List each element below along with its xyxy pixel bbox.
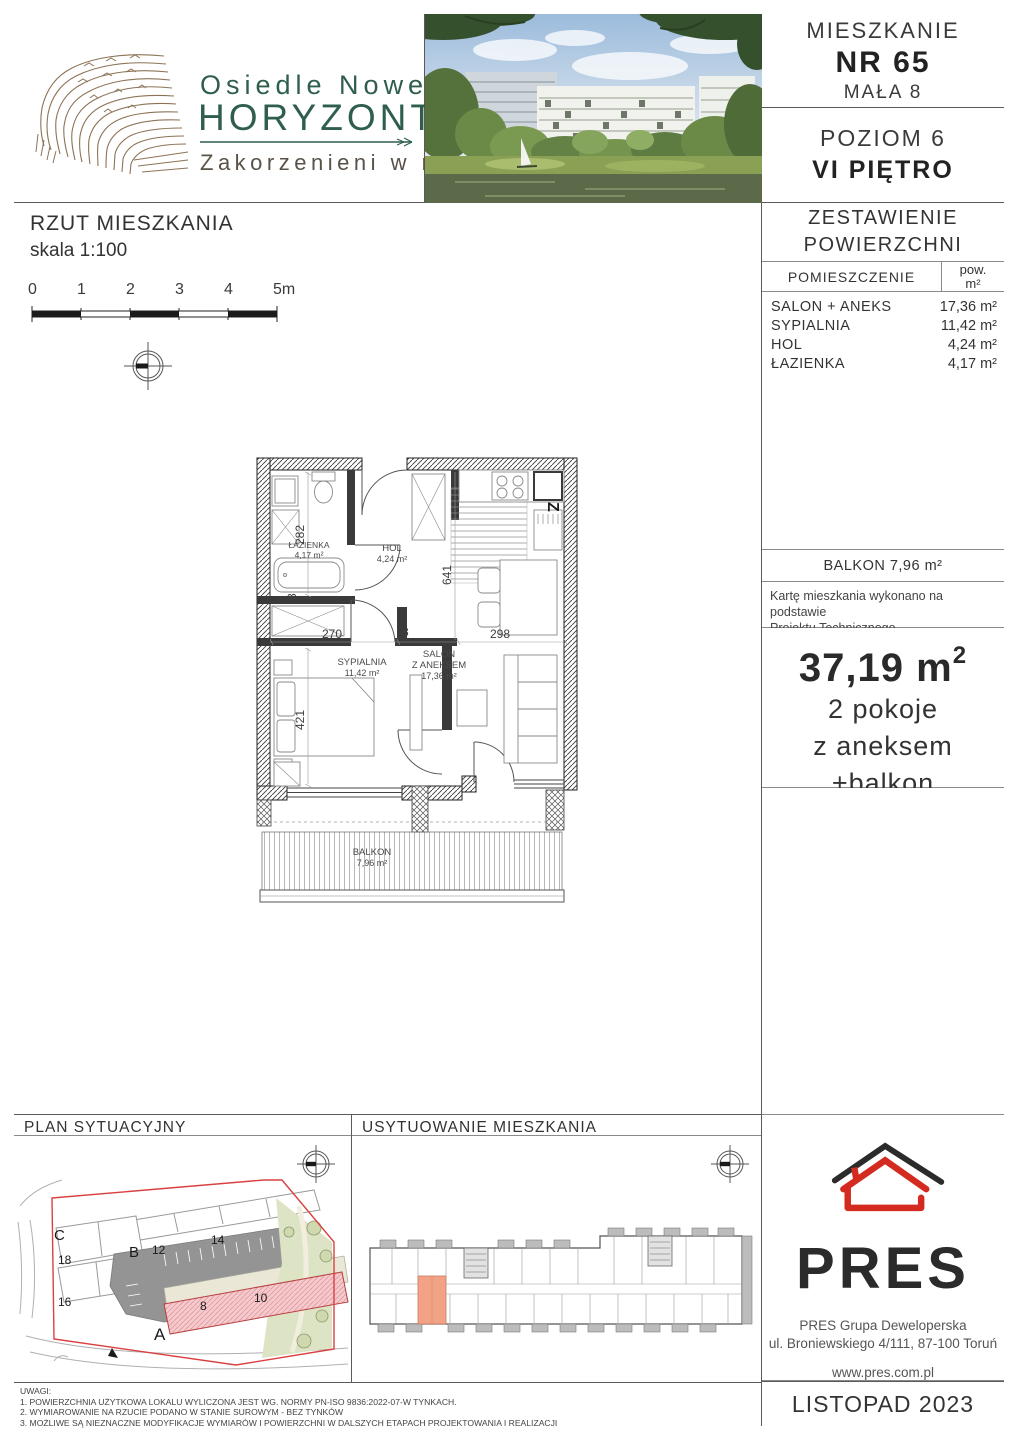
col-area-line2: m²	[965, 277, 980, 291]
site-label-18: 18	[58, 1253, 72, 1267]
plan-title: RZUT MIESZKANIA	[30, 212, 234, 236]
pres-company: PRES Grupa Deweloperska	[799, 1318, 966, 1333]
col-area-header: pow. m²	[941, 262, 1004, 291]
logo-line1: Osiedle Nowe	[200, 70, 425, 100]
balkon-text: BALKON 7,96 m²	[823, 558, 942, 574]
logo-line2: HORYZONTY	[198, 97, 425, 138]
uwagi-line2: 2. WYMIAROWANIE NA RZUCIE PODANO W STANI…	[20, 1407, 755, 1418]
site-label-a: A	[154, 1325, 166, 1344]
site-plan-box: PLAN SYTUACYJNY	[14, 1115, 352, 1383]
scale-tick-4: 4	[224, 281, 233, 298]
row-value: 4,17 m²	[925, 356, 1004, 372]
site-label-12: 12	[152, 1243, 166, 1257]
unit-location-title: USYTUOWANIE MIESZKANIA	[352, 1115, 761, 1136]
uwagi-box: UWAGI: 1. POWIERZCHNIA UŻYTKOWA LOKALU W…	[14, 1383, 762, 1426]
areas-table-body: SALON + ANEKS 17,36 m² SYPIALNIA 11,42 m…	[762, 292, 1004, 550]
balkon-row: BALKON 7,96 m²	[762, 550, 1004, 582]
floor-level-box: POZIOM 6 VI PIĘTRO	[762, 108, 1004, 203]
areas-table-title: ZESTAWIENIE POWIERZCHNI	[762, 203, 1004, 262]
north-arrow-icon	[711, 1145, 749, 1183]
apartment-card-sheet: Osiedle Nowe HORYZONTY Zakorzenieni w na…	[0, 0, 1018, 1440]
row-value: 4,24 m²	[925, 337, 1004, 353]
label-lazienka-area: 4,17 m²	[295, 550, 324, 560]
table-row: HOL 4,24 m²	[762, 335, 1004, 354]
scale-tick-2: 2	[126, 281, 135, 298]
scale-tick-5: 5m	[273, 281, 295, 298]
estate-photo	[425, 14, 762, 203]
label-balkon-area: 7,96 m²	[357, 858, 388, 868]
site-label-10: 10	[254, 1291, 268, 1305]
estate-render-image	[425, 14, 762, 203]
uwagi-line1: 1. POWIERZCHNIA UŻYTKOWA LOKALU WYLICZON…	[20, 1397, 755, 1408]
bedroom-furniture	[274, 660, 374, 786]
dim-298: 298	[490, 627, 510, 641]
apartment-number: NR 65	[835, 46, 930, 80]
pres-wordmark: PRES	[796, 1235, 970, 1302]
right-spacer	[762, 788, 1004, 1115]
row-value: 11,42 m²	[925, 318, 1004, 334]
unit-location-box: USYTUOWANIE MIESZKANIA	[352, 1115, 762, 1383]
pres-website[interactable]: www.pres.com.pl	[832, 1365, 934, 1380]
dim-421: 421	[293, 710, 307, 730]
balcony	[257, 786, 564, 902]
floor-label: VI PIĘTRO	[812, 156, 954, 185]
total-area-value: 37,19 m	[799, 646, 953, 690]
areas-title-line1: ZESTAWIENIE	[808, 205, 958, 232]
scale-bar: 0 1 2 3 4 5m	[24, 278, 314, 340]
areas-title-line2: POWIERZCHNI	[804, 232, 963, 259]
dim-8b: 8	[285, 593, 299, 600]
label-hol-area: 4,24 m²	[377, 554, 408, 564]
row-name: SYPIALNIA	[762, 318, 925, 334]
total-area-sup: 2	[953, 642, 967, 669]
scale-tick-3: 3	[175, 281, 184, 298]
label-sypialnia: SYPIALNIA	[337, 657, 387, 668]
osiedle-logo: Osiedle Nowe HORYZONTY Zakorzenieni w na…	[14, 14, 425, 203]
row-value: 17,36 m²	[925, 299, 1004, 315]
site-plan-title: PLAN SYTUACYJNY	[14, 1115, 351, 1136]
label-salon-2: Z ANEKSEM	[412, 660, 466, 671]
table-row: ŁAZIENKA 4,17 m²	[762, 354, 1004, 373]
summary-box: 37,19 m2 2 pokoje z aneksem +balkon	[762, 628, 1004, 788]
dim-270: 270	[322, 627, 342, 641]
site-label-b: B	[129, 1244, 139, 1261]
label-sypialnia-area: 11,42 m²	[345, 668, 380, 678]
logo-rule-arrow	[200, 138, 412, 146]
row-name: ŁAZIENKA	[762, 356, 925, 372]
table-row: SALON + ANEKS 17,36 m²	[762, 297, 1004, 316]
col-area-line1: pow.	[960, 263, 987, 277]
uwagi-line3: 3. MOŻLIWE SĄ NIEZNACZNE MODYFIKACJE WYM…	[20, 1418, 755, 1429]
site-label-16: 16	[58, 1295, 72, 1309]
row-name: SALON + ANEKS	[762, 299, 925, 315]
scale-tick-0: 0	[28, 281, 37, 298]
developer-logo-box: Osiedle Nowe HORYZONTY Zakorzenieni w na…	[14, 14, 425, 203]
apartment-label: MIESZKANIE	[806, 18, 959, 44]
scale-tick-1: 1	[77, 281, 86, 298]
pres-logo-icon	[788, 1133, 978, 1241]
site-label-14: 14	[211, 1233, 225, 1247]
label-salon-area: 17,36 m²	[421, 671, 457, 681]
level-label: POZIOM 6	[820, 125, 946, 152]
north-arrow-icon	[297, 1145, 335, 1183]
uwagi-title: UWAGI:	[20, 1386, 755, 1397]
row-name: HOL	[762, 337, 925, 353]
total-area: 37,19 m2	[799, 642, 967, 691]
label-salon-1: SALON	[423, 649, 455, 660]
dim-8a: 8	[402, 625, 409, 639]
date-box: LISTOPAD 2023	[762, 1381, 1004, 1426]
logo-tagline: Zakorzenieni w naturze	[200, 150, 425, 175]
areas-table-header: POMIESZCZENIE pow. m²	[762, 262, 1004, 292]
apartment-floor-plan: 270 8 298 282 421 641 8 ŁAZIENKA 4,17 m²…	[252, 450, 582, 915]
table-row: SYPIALNIA 11,42 m²	[762, 316, 1004, 335]
col-room-header: POMIESZCZENIE	[762, 262, 941, 291]
site-label-c: C	[54, 1227, 65, 1244]
label-hol: HOL	[382, 543, 402, 554]
summary-line2: z aneksem	[813, 728, 953, 765]
pres-box: PRES PRES Grupa Deweloperska ul. Broniew…	[762, 1115, 1004, 1381]
logo-contour-lines	[36, 55, 188, 174]
site-plan-drawing: C 18 B 12 14 16 8 10 A	[14, 1136, 350, 1379]
summary-line1: 2 pokoje	[828, 691, 938, 728]
issue-date: LISTOPAD 2023	[792, 1391, 974, 1418]
floor-strip-drawing	[352, 1136, 760, 1379]
label-lazienka: ŁAZIENKA	[288, 540, 329, 550]
north-arrow-icon	[118, 336, 178, 396]
technical-note: Kartę mieszkania wykonano na podstawie P…	[762, 582, 1004, 628]
pres-address: ul. Broniewskiego 4/111, 87-100 Toruń	[769, 1336, 997, 1351]
plan-scale: skala 1:100	[30, 240, 127, 262]
label-balkon: BALKON	[353, 847, 392, 858]
note-line1: Kartę mieszkania wykonano na podstawie	[770, 588, 996, 620]
dim-641: 641	[440, 565, 454, 585]
site-label-8: 8	[200, 1299, 207, 1313]
apartment-id-box: MIESZKANIE NR 65 MAŁA 8	[762, 14, 1004, 108]
entrance-marker: Z	[544, 502, 561, 512]
apartment-street: MAŁA 8	[844, 82, 923, 104]
